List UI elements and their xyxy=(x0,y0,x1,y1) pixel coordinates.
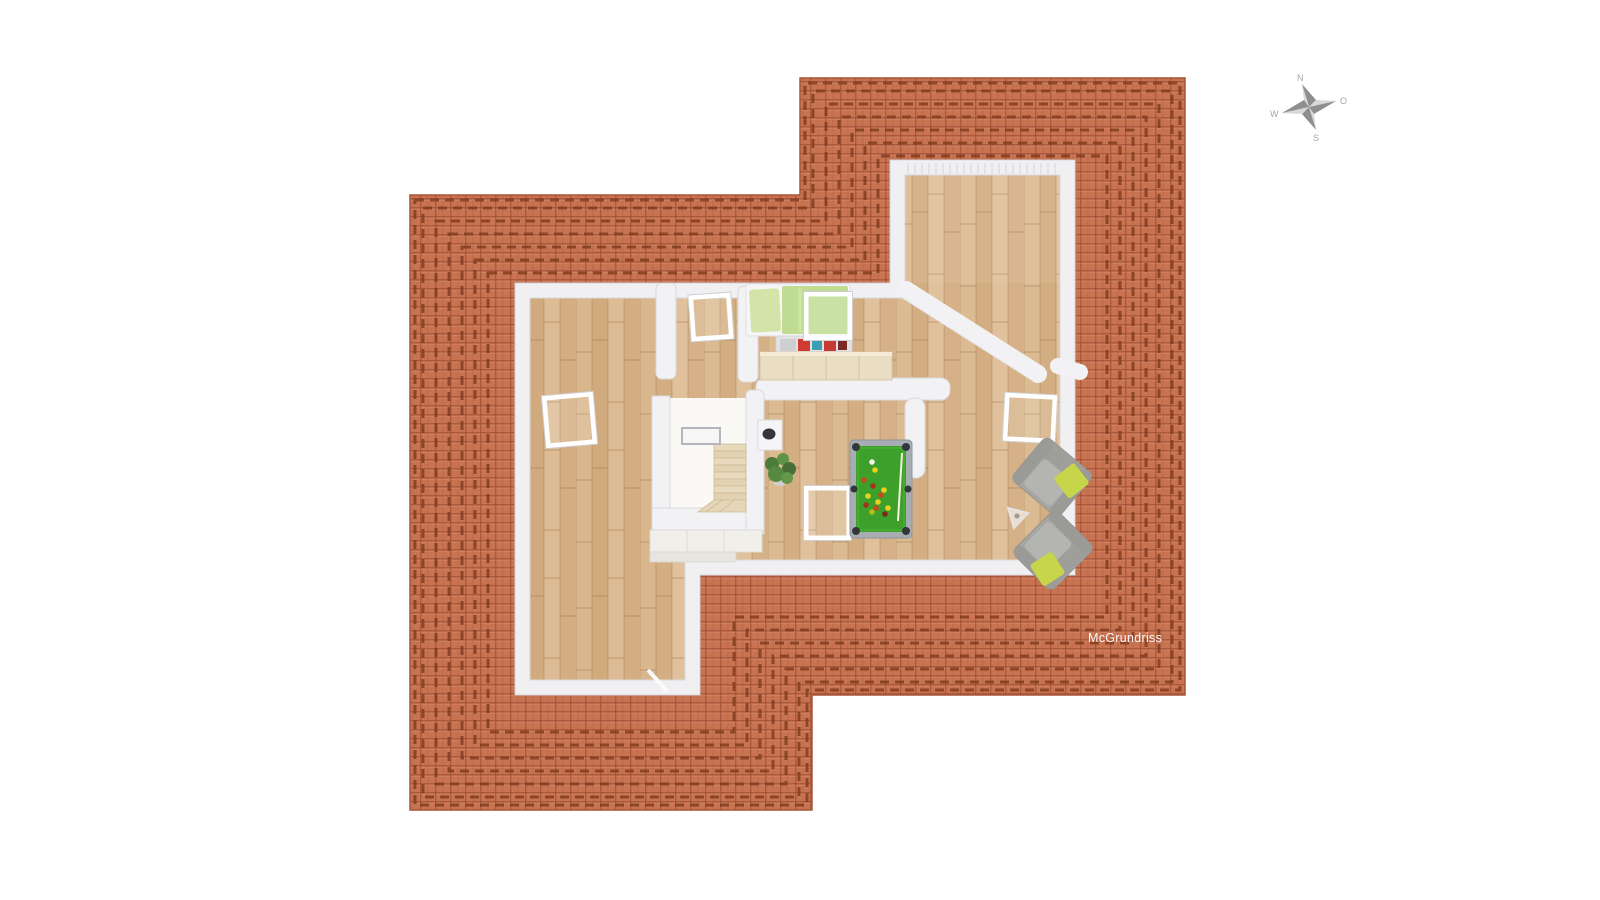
skylight-left-room xyxy=(541,391,597,448)
compass-north-label: N xyxy=(1297,73,1304,83)
wall-bedroom-south xyxy=(756,378,950,400)
skylight-hall xyxy=(688,292,734,342)
gallery-floor-tint xyxy=(905,175,1060,283)
compass-south-label: S xyxy=(1313,133,1319,143)
stair-railing xyxy=(682,428,720,444)
stairwell-wall-right xyxy=(746,390,764,534)
wall-leftroom-hall xyxy=(656,283,676,379)
skylight-bed xyxy=(804,292,853,341)
compass-rose: N O S W xyxy=(1270,73,1347,143)
left-room-floor-tint xyxy=(530,298,656,680)
sideboard xyxy=(760,352,892,380)
compass-west-label: W xyxy=(1270,109,1279,119)
floor-plan-canvas: N O S W McGrundriss xyxy=(0,0,1600,900)
bed-pillow xyxy=(749,288,781,333)
chimney-flue xyxy=(763,429,776,440)
staircase xyxy=(650,390,782,562)
watermark: McGrundriss xyxy=(1088,631,1162,645)
skylight-game-room-left xyxy=(804,486,852,541)
pool-table xyxy=(850,440,912,538)
floor-plan-scene: N O S W McGrundriss xyxy=(0,0,1600,900)
compass-star xyxy=(1282,84,1336,130)
chimney xyxy=(758,420,782,450)
skylight-game-room-right xyxy=(1002,392,1057,444)
compass-east-label: O xyxy=(1340,96,1347,106)
wall-gallery-door-stub xyxy=(1058,366,1080,372)
